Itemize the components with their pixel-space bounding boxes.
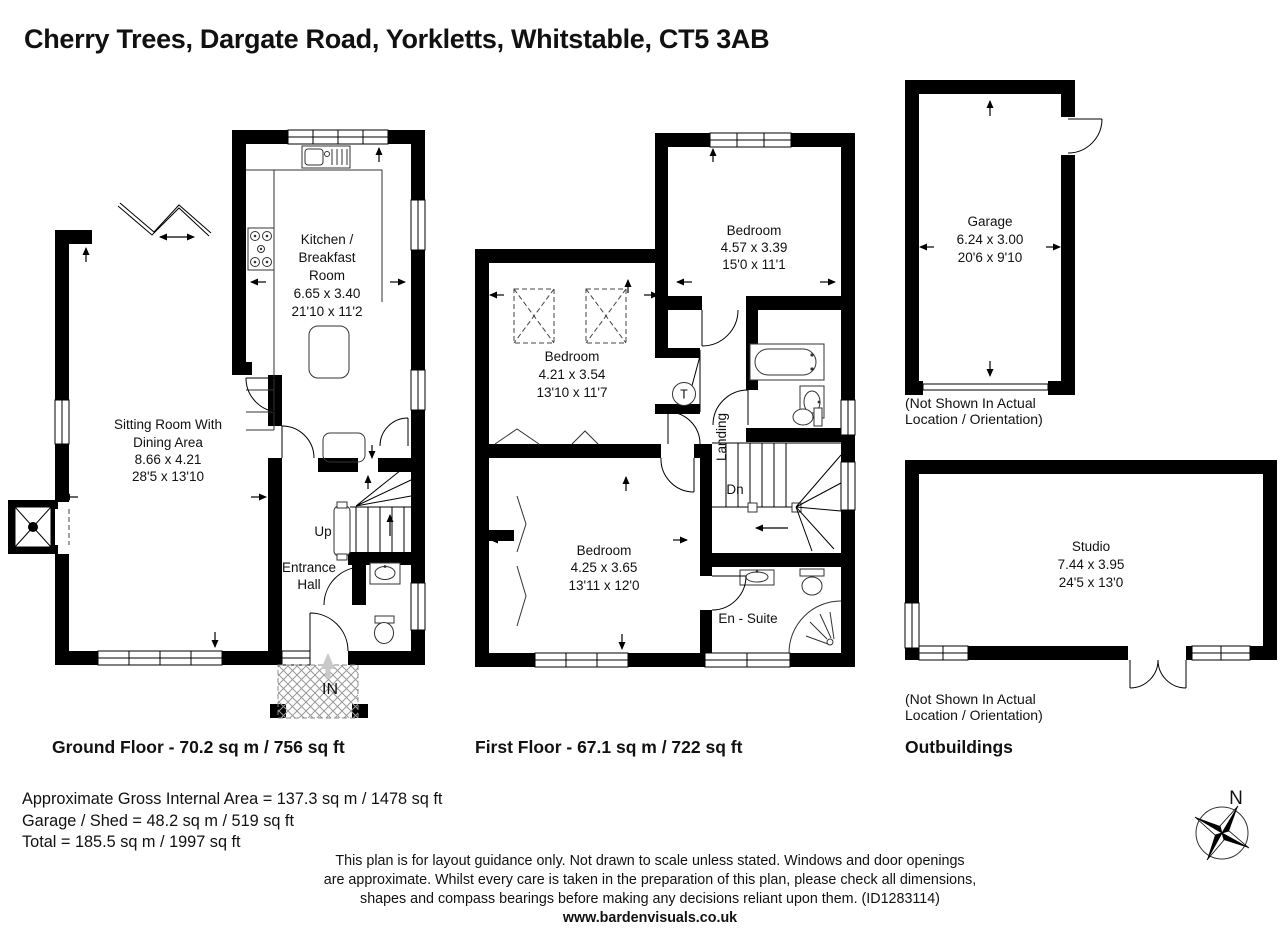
cupboard-front [495,429,598,444]
tank-label: T [680,388,688,402]
folding-wardrobe-doors [517,496,526,626]
entrance-hall-label: Entrance [282,560,336,575]
garage-dims-imperial: 20'6 x 9'10 [958,250,1022,265]
kitchen-label: Kitchen / [301,232,354,247]
bedroom3-dims-metric: 4.25 x 3.65 [571,560,638,575]
bedroom2-label: Bedroom [545,349,600,364]
compass-north-label: N [1229,788,1243,809]
studio-plan: Studio 7.44 x 3.95 24'5 x 13'0 (Not Show… [905,460,1277,723]
bathroom-toilet [793,408,822,426]
svg-text:Location / Orientation): Location / Orientation) [905,411,1043,427]
outbuildings-area-label: Outbuildings [905,737,1013,758]
studio-dims-metric: 7.44 x 3.95 [1058,557,1125,572]
ground-floor-area-label: Ground Floor - 70.2 sq m / 756 sq ft [52,737,345,758]
bedroom3-dims-imperial: 13'11 x 12'0 [569,578,640,593]
stairs-up [334,462,411,560]
hall-table [323,433,365,462]
first-floor-area-label: First Floor - 67.1 sq m / 722 sq ft [475,737,742,758]
door [1068,119,1102,153]
island-unit [309,326,349,378]
svg-text:Hall: Hall [297,577,320,592]
disclaimer-line: This plan is for layout guidance only. N… [240,852,1060,871]
disclaimer-line: are approximate. Whilst every care is ta… [240,871,1060,890]
bedroom2-dims-metric: 4.21 x 3.54 [539,367,606,382]
svg-text:Location / Orientation): Location / Orientation) [905,707,1043,723]
garage-plan: Garage 6.24 x 3.00 20'6 x 9'10 (Not Show… [905,80,1102,427]
kitchen-dims-imperial: 21'10 x 11'2 [292,304,363,319]
svg-text:Dining Area: Dining Area [133,435,203,450]
stairs-down-label: Dn [726,482,743,497]
kitchen-dims-metric: 6.65 x 3.40 [294,286,361,301]
disclaimer-line: shapes and compass bearings before makin… [240,890,1060,909]
svg-text:Breakfast: Breakfast [298,250,355,265]
bedroom1-dims-metric: 4.57 x 3.39 [721,240,788,255]
bath [750,344,824,380]
stairs-up-label: Up [314,524,331,539]
landing-label: Landing [714,413,729,461]
gross-internal-area: Approximate Gross Internal Area = 137.3 … [22,789,442,811]
garage-door [923,384,1048,390]
bedroom1-label: Bedroom [727,223,782,238]
double-doors [1130,660,1186,688]
sitting-room-dims-metric: 8.66 x 4.21 [135,452,202,467]
studio-note: (Not Shown In Actual [905,691,1036,707]
garage-dims-metric: 6.24 x 3.00 [957,232,1024,247]
stairs-down [712,443,841,551]
wardrobe [514,289,626,343]
studio-label: Studio [1072,539,1110,554]
bifold-door [118,203,211,237]
kitchen-sink [302,146,350,168]
garage-label: Garage [967,214,1012,229]
fireplace [8,500,69,554]
ensuite-label: En - Suite [718,611,777,626]
bedroom3-label: Bedroom [577,543,632,558]
website-link: www.bardenvisuals.co.uk [240,909,1060,928]
disclaimer: This plan is for layout guidance only. N… [240,852,1060,928]
compass-rose: N [1195,788,1249,860]
sitting-room-label: Sitting Room With [114,417,222,432]
floorplan-page: Cherry Trees, Dargate Road, Yorkletts, W… [0,0,1280,928]
garage-shed-area: Garage / Shed = 48.2 sq m / 519 sq ft [22,811,442,833]
sitting-room-dims-imperial: 28'5 x 13'10 [132,469,204,484]
ensuite-toilet [800,569,824,595]
tank-cupboard: T [673,350,701,412]
first-floor-plan: T [475,133,855,667]
entry-in-label: IN [322,681,338,698]
ground-floor-plan: Kitchen / Breakfast Room 6.65 x 3.40 21'… [8,130,425,718]
bedroom1-dims-imperial: 15'0 x 11'1 [722,257,785,272]
garage-note: (Not Shown In Actual [905,395,1036,411]
wc-basin [370,563,400,584]
bedroom2-dims-imperial: 13'10 x 11'7 [537,385,608,400]
area-summary: Approximate Gross Internal Area = 137.3 … [22,789,442,854]
studio-dims-imperial: 24'5 x 13'0 [1059,575,1123,590]
svg-text:Room: Room [309,268,345,283]
total-area: Total = 185.5 sq m / 1997 sq ft [22,832,442,854]
shower [789,601,841,653]
hob [248,228,274,270]
wc-toilet [375,616,395,644]
